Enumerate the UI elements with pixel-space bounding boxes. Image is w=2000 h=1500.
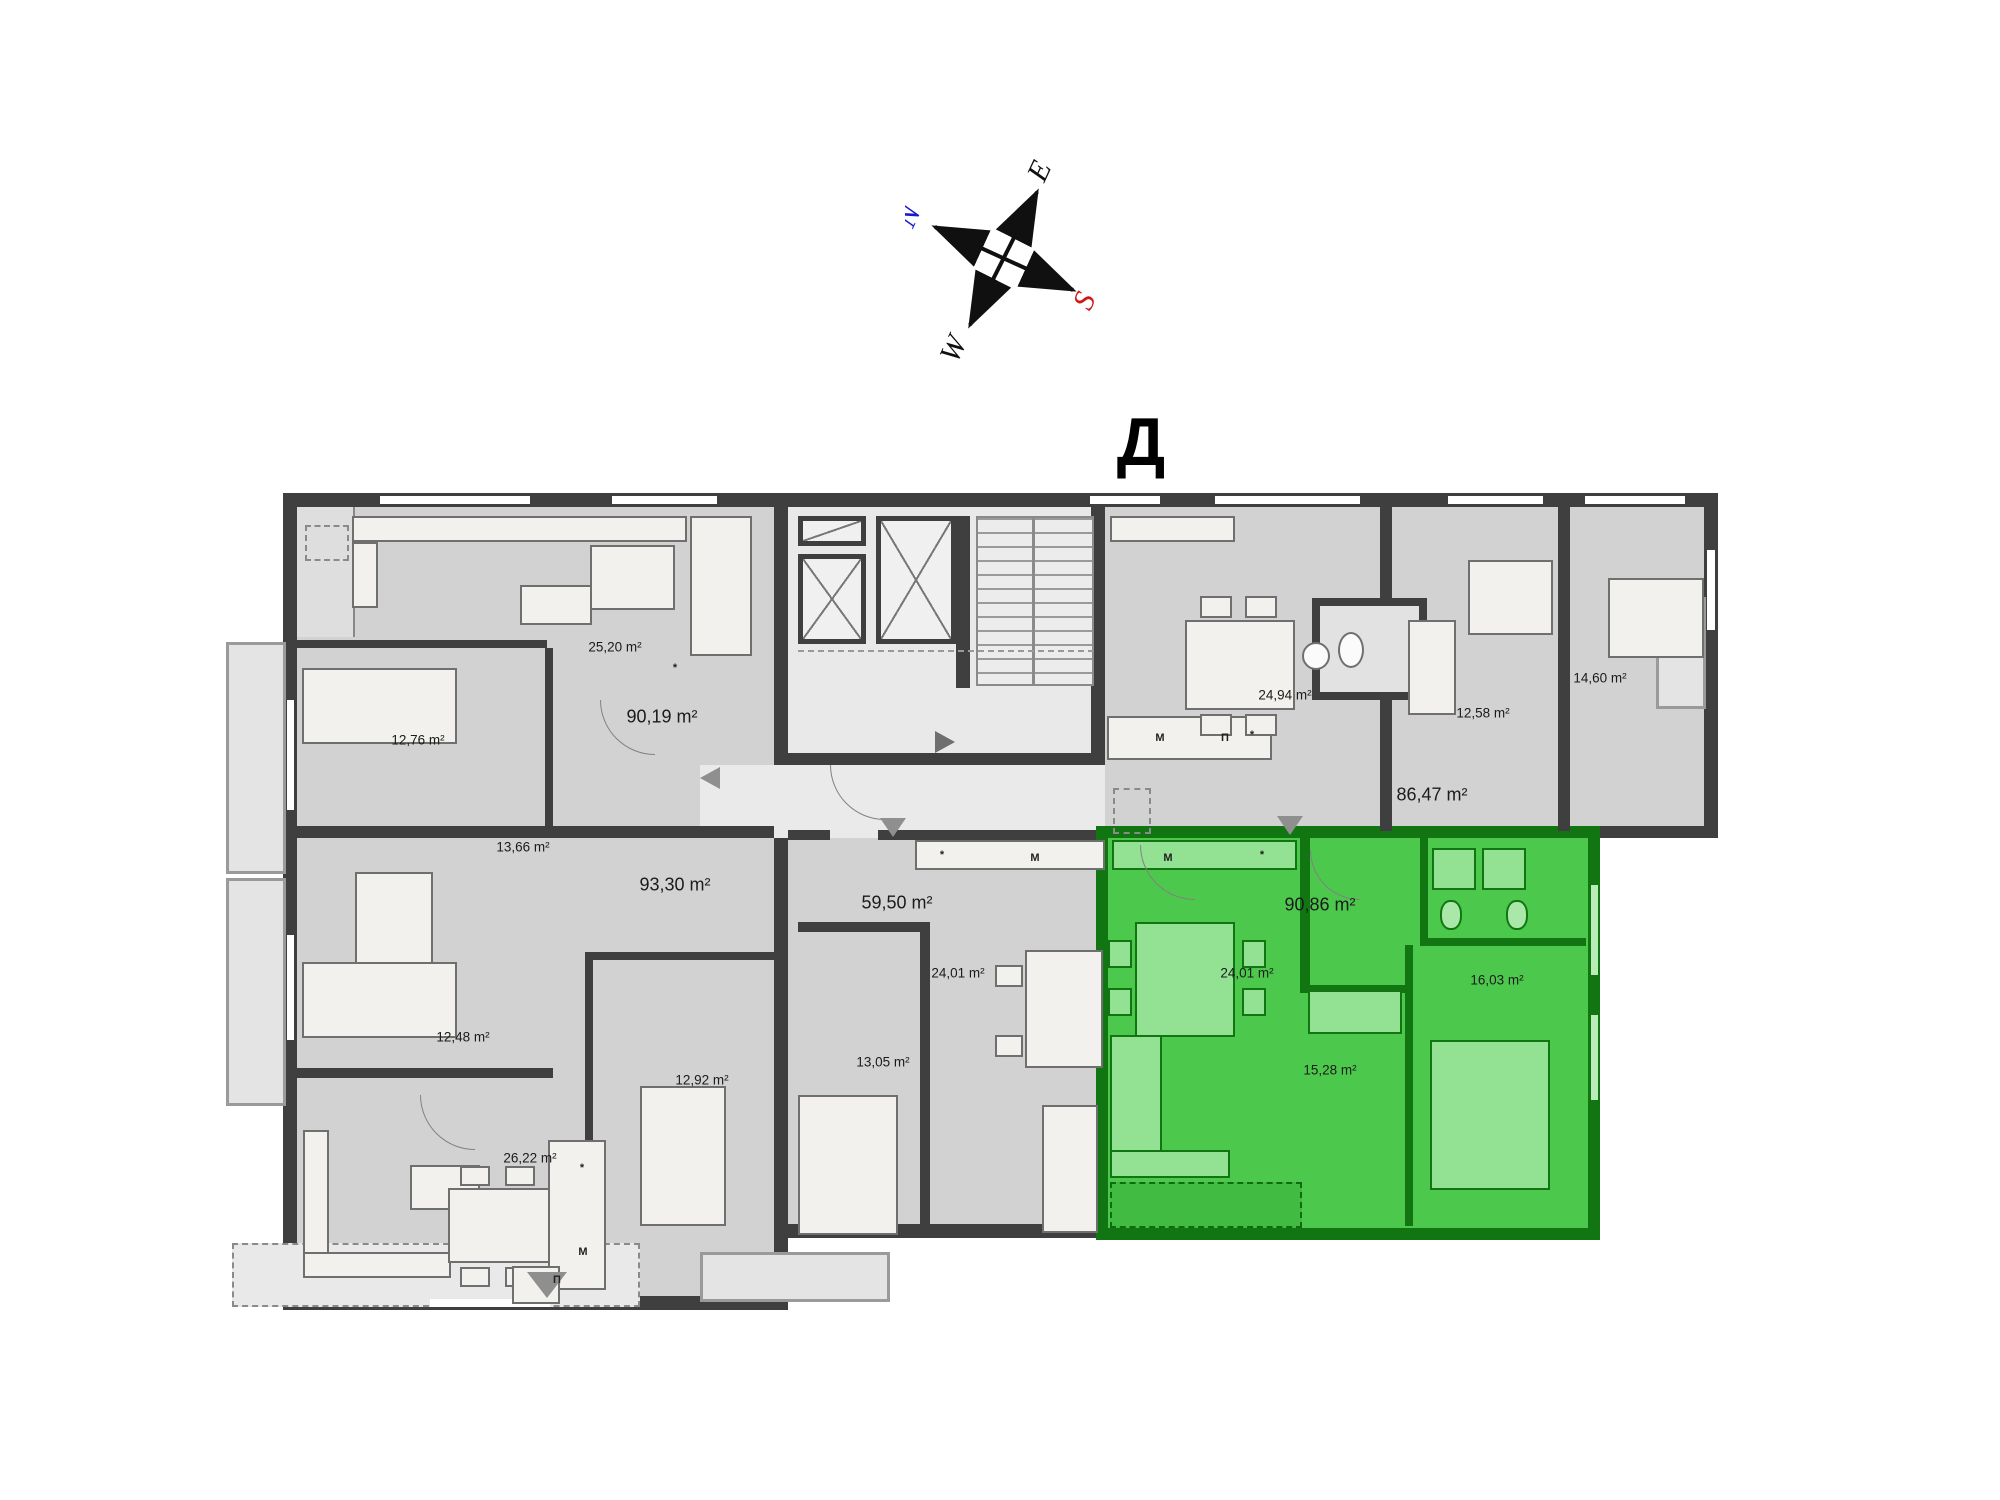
compass-ew-axis bbox=[970, 192, 1037, 325]
window bbox=[850, 1241, 950, 1249]
window bbox=[1448, 496, 1543, 504]
window bbox=[1215, 496, 1360, 504]
bed bbox=[1608, 578, 1704, 658]
bed bbox=[302, 962, 457, 1038]
window bbox=[380, 496, 530, 504]
wall bbox=[1558, 507, 1570, 831]
room-area-label: 59,50 m² bbox=[861, 893, 932, 914]
arrow-right-icon bbox=[935, 731, 955, 753]
window bbox=[1090, 496, 1160, 504]
balcony-left-upper bbox=[226, 642, 286, 874]
chair-green bbox=[1108, 988, 1132, 1016]
chair-green bbox=[1108, 940, 1132, 968]
sofa bbox=[352, 516, 687, 542]
chair bbox=[505, 1166, 535, 1186]
appliance-label: M bbox=[578, 1246, 587, 1258]
wall bbox=[798, 922, 930, 932]
wall bbox=[297, 640, 547, 648]
compass-south-label: S bbox=[1066, 287, 1102, 315]
wall bbox=[788, 830, 830, 840]
core-dashed-line bbox=[798, 650, 1094, 652]
window bbox=[612, 496, 717, 504]
appliance-label: M bbox=[1155, 732, 1164, 744]
wall bbox=[297, 1068, 553, 1078]
chair-green bbox=[1242, 940, 1266, 968]
window bbox=[287, 935, 294, 1040]
compass-west-label: W bbox=[933, 328, 975, 367]
compass-svg: N E S W bbox=[905, 150, 1115, 370]
stair-stringer bbox=[1032, 518, 1035, 684]
terrace-highlighted-apartment bbox=[1110, 1182, 1302, 1228]
appliance-label: П bbox=[553, 1274, 561, 1286]
room-area-label: 12,92 m² bbox=[675, 1073, 728, 1088]
wall bbox=[297, 826, 774, 838]
room-area-label: 24,01 m² bbox=[931, 966, 984, 981]
sofa bbox=[1042, 1105, 1098, 1233]
room-area-label: 90,19 m² bbox=[626, 707, 697, 728]
room-area-label: 12,58 m² bbox=[1456, 706, 1509, 721]
core-divider-wall bbox=[956, 516, 970, 688]
toilet-green bbox=[1440, 900, 1462, 930]
sofa-green bbox=[1110, 1035, 1162, 1160]
chair bbox=[1245, 596, 1277, 618]
room-area-label: 24,01 m² bbox=[1220, 966, 1273, 981]
shaft-vent bbox=[798, 516, 866, 546]
coffee-table bbox=[520, 585, 592, 625]
bed-green bbox=[1308, 990, 1402, 1034]
compass-east-label: E bbox=[1020, 156, 1058, 187]
chair bbox=[460, 1267, 490, 1287]
appliance-label: * bbox=[673, 662, 677, 674]
room-area-label: 13,66 m² bbox=[496, 840, 549, 855]
building-section-label: Д bbox=[1096, 408, 1186, 476]
dashed-box bbox=[1113, 788, 1151, 834]
room-area-label: 13,05 m² bbox=[856, 1055, 909, 1070]
room-area-label: 25,20 m² bbox=[588, 640, 641, 655]
bed bbox=[1468, 560, 1553, 635]
room-area-label: 90,86 m² bbox=[1284, 895, 1355, 916]
appliance-label: M bbox=[1030, 852, 1039, 864]
room-area-label: 12,76 m² bbox=[391, 733, 444, 748]
sofa-green bbox=[1110, 1150, 1230, 1178]
toilet-green bbox=[1506, 900, 1528, 930]
compass-north-label: N bbox=[905, 198, 928, 233]
chair bbox=[995, 1035, 1023, 1057]
sofa bbox=[352, 542, 378, 608]
wall bbox=[878, 830, 1096, 840]
room-area-label: 24,94 m² bbox=[1258, 688, 1311, 703]
appliance-label: * bbox=[940, 849, 944, 861]
wall-green bbox=[1420, 838, 1428, 944]
dining-table bbox=[1025, 950, 1103, 1068]
window bbox=[1707, 550, 1715, 630]
appliance-label: П bbox=[1221, 732, 1229, 744]
shower-green bbox=[1482, 848, 1526, 890]
dining-table bbox=[448, 1188, 553, 1263]
arrow-down-icon bbox=[1277, 816, 1303, 835]
toilet bbox=[1338, 632, 1364, 668]
window bbox=[287, 700, 294, 810]
arrow-left-icon bbox=[700, 767, 720, 789]
wall-green bbox=[1300, 838, 1310, 993]
balcony-bottom-middle bbox=[700, 1252, 890, 1302]
wall-green bbox=[1405, 945, 1413, 1226]
room-area-label: 86,47 m² bbox=[1396, 785, 1467, 806]
room-area-label: 12,48 m² bbox=[436, 1030, 489, 1045]
bed bbox=[798, 1095, 898, 1235]
elevator-shaft-1 bbox=[798, 554, 866, 644]
sofa bbox=[1110, 516, 1235, 542]
shower-green bbox=[1432, 848, 1476, 890]
wall bbox=[545, 648, 553, 826]
room-area-label: 93,30 m² bbox=[639, 875, 710, 896]
bed bbox=[640, 1086, 726, 1226]
wall-green bbox=[1420, 938, 1586, 946]
sofa bbox=[303, 1252, 451, 1278]
kitchen-counter bbox=[690, 516, 752, 656]
chair bbox=[1200, 596, 1232, 618]
sink bbox=[1302, 642, 1330, 670]
arrow-down-icon bbox=[880, 818, 906, 837]
appliance-label: * bbox=[580, 1162, 584, 1174]
wall bbox=[920, 928, 930, 1238]
wall bbox=[585, 952, 788, 960]
room-area-label: 15,28 m² bbox=[1303, 1063, 1356, 1078]
balcony-left-lower bbox=[226, 878, 286, 1106]
floor-plan-page: N E S W Д 25,20 m²90,19 m²12,76 m²13,66 … bbox=[0, 0, 2000, 1500]
appliance-label: * bbox=[1260, 849, 1264, 861]
window-green bbox=[1591, 885, 1598, 975]
dining-table bbox=[590, 545, 675, 610]
chair-green bbox=[1242, 988, 1266, 1016]
window bbox=[1585, 496, 1685, 504]
chair bbox=[995, 965, 1023, 987]
room-area-label: 14,60 m² bbox=[1573, 671, 1626, 686]
desk bbox=[1408, 620, 1456, 715]
compass-rose: N E S W bbox=[905, 150, 1115, 370]
appliance-label: M bbox=[1163, 852, 1172, 864]
window-green bbox=[1591, 1015, 1598, 1100]
dashed-box bbox=[305, 525, 349, 561]
elevator-shaft-2 bbox=[876, 516, 956, 644]
staircase bbox=[976, 516, 1094, 686]
room-area-label: 16,03 m² bbox=[1470, 973, 1523, 988]
chair bbox=[460, 1166, 490, 1186]
room-area-label: 26,22 m² bbox=[503, 1151, 556, 1166]
bed-green bbox=[1430, 1040, 1550, 1190]
appliance-label: * bbox=[1250, 729, 1254, 741]
